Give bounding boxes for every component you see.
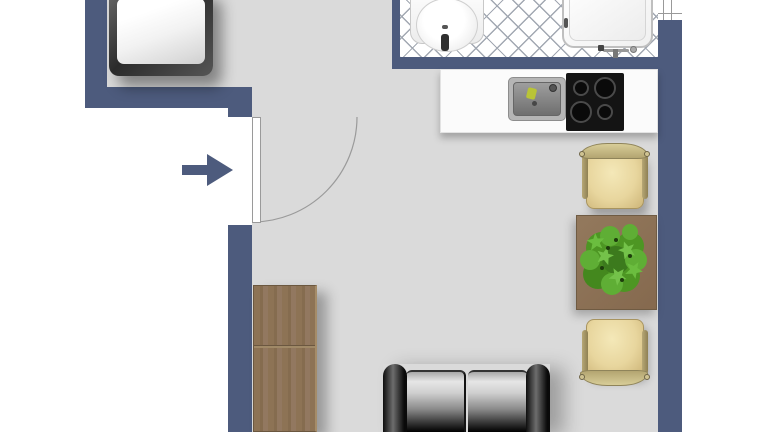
chair-seat bbox=[586, 319, 644, 375]
floor-plan bbox=[0, 0, 768, 432]
bed bbox=[109, 0, 213, 76]
sofa-arm-right bbox=[526, 364, 550, 432]
wall-nook-bottom bbox=[85, 87, 252, 108]
window bbox=[658, 0, 682, 20]
sofa-arm-left bbox=[383, 364, 407, 432]
chair-knob bbox=[579, 374, 585, 380]
door-leaf bbox=[252, 117, 261, 223]
window-frame-line bbox=[671, 0, 672, 20]
wardrobe-divider bbox=[254, 345, 315, 348]
entrance-arrow-icon bbox=[180, 150, 236, 190]
sofa-cushion bbox=[468, 370, 528, 432]
chair-arm bbox=[642, 330, 648, 374]
plant-foliage bbox=[580, 224, 647, 295]
bathtub-faucet-spout bbox=[613, 49, 618, 58]
bathtub-faucet-handle bbox=[598, 45, 604, 51]
bathtub-basin bbox=[569, 0, 646, 41]
washbasin-faucet bbox=[441, 34, 449, 51]
arrow-shape bbox=[182, 154, 233, 186]
bathtub-faucet-knob bbox=[630, 46, 637, 53]
burner bbox=[570, 101, 592, 123]
chair-seat bbox=[586, 153, 644, 209]
chair-arm bbox=[582, 330, 588, 374]
chair-backrest bbox=[580, 143, 648, 159]
sofa bbox=[383, 364, 550, 432]
wall-left-lower bbox=[228, 225, 252, 432]
cooktop bbox=[566, 73, 624, 131]
dining-chair-top bbox=[578, 141, 652, 215]
burner bbox=[597, 104, 613, 120]
burner bbox=[573, 80, 589, 96]
washbasin-drain bbox=[442, 25, 448, 29]
wall-right bbox=[658, 20, 682, 432]
chair-arm bbox=[582, 155, 588, 199]
chair-arm bbox=[642, 155, 648, 199]
wardrobe-cabinet bbox=[253, 285, 317, 432]
sofa-cushion bbox=[406, 370, 466, 432]
bathtub-handle bbox=[564, 18, 568, 28]
sink-drain bbox=[532, 101, 537, 106]
burner bbox=[594, 77, 616, 99]
sink-faucet bbox=[549, 84, 557, 92]
bathtub bbox=[562, 0, 653, 48]
chair-backrest bbox=[580, 370, 648, 386]
wall-above-door bbox=[228, 87, 252, 117]
chair-knob bbox=[579, 151, 585, 157]
door-swing-arc bbox=[252, 117, 362, 227]
window-frame-line bbox=[663, 0, 664, 20]
washbasin bbox=[410, 0, 484, 56]
chair-knob bbox=[644, 151, 650, 157]
potted-plant bbox=[572, 218, 660, 306]
wall-bathroom-bottom bbox=[392, 57, 682, 69]
kitchen-sink bbox=[508, 77, 566, 121]
bed-mattress bbox=[117, 0, 205, 64]
window-frame-line bbox=[658, 13, 682, 14]
dining-chair-bottom bbox=[578, 314, 652, 388]
chair-knob bbox=[644, 374, 650, 380]
